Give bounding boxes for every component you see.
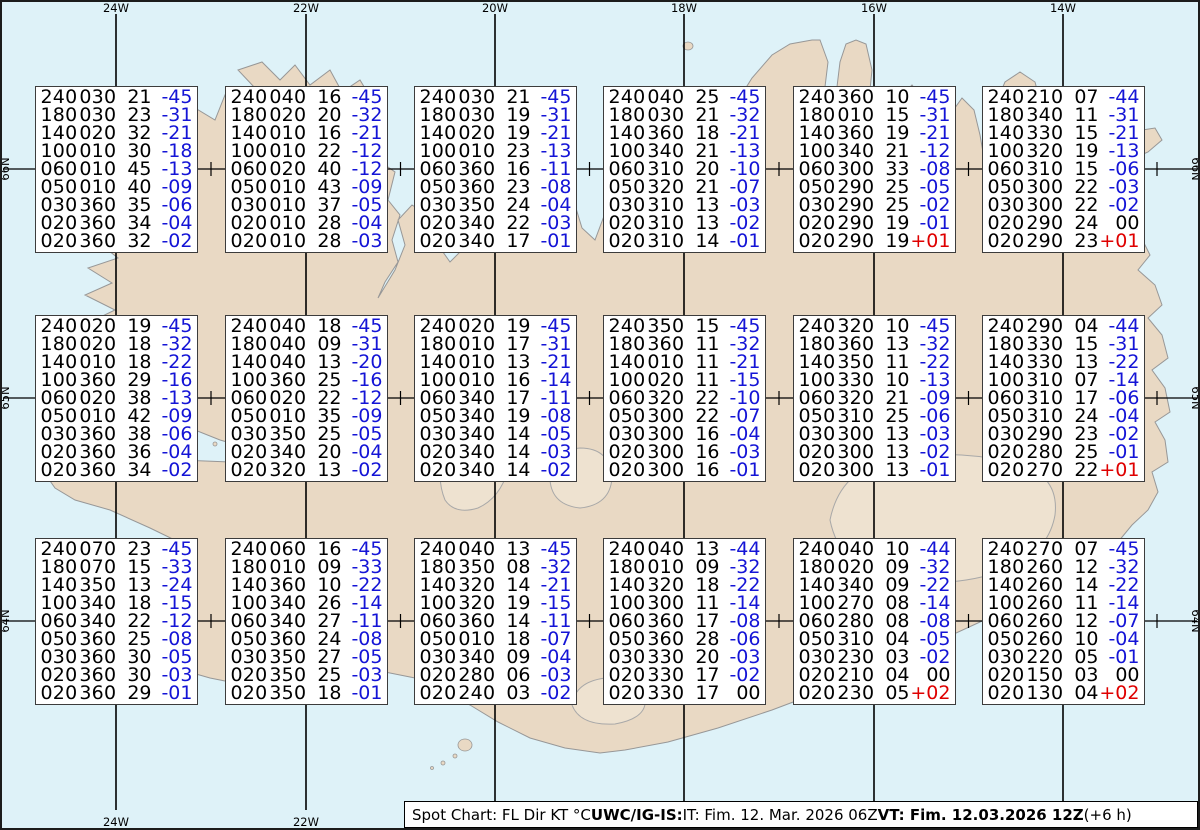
spot-line: 24002019-45: [420, 317, 572, 335]
spot-spd: 16: [694, 461, 720, 479]
spot-fl: 240: [231, 88, 268, 106]
spot-tmp: -01: [152, 684, 193, 702]
spot-box-r2c5: 24027007-4518026012-3214026014-221002601…: [982, 538, 1145, 705]
caption-segment: VT: Fim. 12.03.2026 12Z: [878, 806, 1084, 824]
spot-spd: 18: [316, 317, 342, 335]
spot-fl: 020: [231, 232, 268, 250]
spot-spd: 13: [505, 540, 531, 558]
spot-dir: 010: [269, 232, 306, 250]
spot-spd: 23: [1073, 232, 1099, 250]
spot-chart-canvas: 24W24W22W22W20W20W18W18W16W16W14W14W66N6…: [0, 0, 1200, 830]
spot-tmp: -02: [152, 461, 193, 479]
spot-spd: 29: [126, 684, 152, 702]
spot-box-r2c4: 24004010-4418002009-3214034009-221002700…: [793, 538, 956, 705]
spot-fl: 240: [988, 540, 1025, 558]
spot-tmp: -45: [910, 88, 951, 106]
spot-tmp: -45: [720, 317, 761, 335]
spot-fl: 020: [41, 684, 78, 702]
spot-box-r0c4: 24036010-4518001015-3114036019-211003402…: [793, 86, 956, 253]
spot-fl: 240: [609, 88, 646, 106]
spot-dir: 070: [79, 540, 116, 558]
spot-box-r0c0: 24003021-4518003023-3114002032-211000103…: [35, 86, 198, 253]
spot-spd: 04: [1073, 317, 1099, 335]
spot-tmp: -02: [531, 684, 572, 702]
spot-line: 02032013-02: [231, 461, 383, 479]
spot-tmp: -03: [342, 232, 383, 250]
spot-dir: 330: [647, 684, 684, 702]
spot-fl: 020: [41, 461, 78, 479]
spot-dir: 290: [837, 232, 874, 250]
lon-label-bottom: 24W: [103, 815, 129, 829]
lat-label-right: 65N: [1189, 386, 1200, 409]
spot-spd: 13: [694, 540, 720, 558]
spot-spd: 03: [505, 684, 531, 702]
spot-fl: 020: [609, 461, 646, 479]
spot-line: 24027007-45: [988, 540, 1140, 558]
spot-spd: 34: [126, 461, 152, 479]
spot-fl: 020: [609, 232, 646, 250]
spot-dir: 300: [837, 461, 874, 479]
spot-line: 02029019+01: [799, 232, 951, 250]
spot-fl: 020: [231, 461, 268, 479]
spot-dir: 230: [837, 684, 874, 702]
spot-fl: 240: [41, 88, 78, 106]
spot-box-r1c1: 24004018-4518004009-3114004013-201003602…: [225, 315, 388, 482]
spot-spd: 05: [884, 684, 910, 702]
spot-line: 02030013-01: [799, 461, 951, 479]
spot-line: 24004016-45: [231, 88, 383, 106]
spot-fl: 240: [609, 317, 646, 335]
spot-dir: 290: [1026, 232, 1063, 250]
spot-spd: 07: [1073, 540, 1099, 558]
spot-fl: 020: [988, 461, 1025, 479]
lon-label-top: 24W: [103, 1, 129, 15]
spot-dir: 350: [647, 317, 684, 335]
spot-dir: 360: [79, 232, 116, 250]
spot-spd: 21: [505, 88, 531, 106]
spot-line: 02034014-02: [420, 461, 572, 479]
spot-dir: 270: [1026, 461, 1063, 479]
spot-tmp: +01: [1099, 461, 1140, 479]
spot-dir: 240: [458, 684, 495, 702]
lat-label-left: 66N: [0, 157, 12, 180]
spot-tmp: +01: [1099, 232, 1140, 250]
spot-box-r0c3: 24004025-4518003021-3214036018-211003402…: [603, 86, 766, 253]
spot-fl: 240: [41, 540, 78, 558]
spot-tmp: -45: [152, 88, 193, 106]
spot-dir: 300: [647, 461, 684, 479]
spot-line: 24032010-45: [799, 317, 951, 335]
spot-spd: 15: [694, 317, 720, 335]
spot-line: 02031014-01: [609, 232, 761, 250]
spot-box-r2c3: 24004013-4418001009-3214032018-221003001…: [603, 538, 766, 705]
spot-line: 02024003-02: [420, 684, 572, 702]
spot-tmp: -02: [531, 461, 572, 479]
spot-line: 02036032-02: [41, 232, 193, 250]
caption-segment: (+6 h): [1084, 806, 1132, 824]
spot-dir: 020: [458, 317, 495, 335]
spot-line: 02001028-03: [231, 232, 383, 250]
spot-line: 24035015-45: [609, 317, 761, 335]
spot-tmp: +02: [1099, 684, 1140, 702]
spot-line: 02034017-01: [420, 232, 572, 250]
spot-fl: 020: [420, 461, 457, 479]
spot-spd: 19: [126, 317, 152, 335]
spot-line: 24003021-45: [41, 88, 193, 106]
spot-line: 02013004+02: [988, 684, 1140, 702]
spot-line: 02029023+01: [988, 232, 1140, 250]
spot-fl: 020: [420, 232, 457, 250]
spot-tmp: -45: [152, 317, 193, 335]
spot-dir: 040: [269, 317, 306, 335]
spot-fl: 240: [231, 317, 268, 335]
spot-spd: 28: [316, 232, 342, 250]
spot-line: 24021007-44: [988, 88, 1140, 106]
spot-tmp: -02: [152, 232, 193, 250]
spot-line: 02030016-01: [609, 461, 761, 479]
spot-box-r1c4: 24032010-4518036013-3214035011-221003301…: [793, 315, 956, 482]
spot-dir: 040: [647, 540, 684, 558]
spot-dir: 340: [458, 461, 495, 479]
lon-label-top: 18W: [671, 1, 697, 15]
spot-fl: 240: [420, 88, 457, 106]
spot-fl: 020: [420, 684, 457, 702]
spot-fl: 240: [799, 88, 836, 106]
lat-label-left: 64N: [0, 609, 12, 632]
lat-label-right: 66N: [1189, 157, 1200, 180]
spot-dir: 360: [837, 88, 874, 106]
spot-line: 24002019-45: [41, 317, 193, 335]
lon-label-top: 16W: [861, 1, 887, 15]
spot-fl: 240: [799, 540, 836, 558]
spot-dir: 020: [79, 317, 116, 335]
spot-tmp: +02: [910, 684, 951, 702]
spot-box-r0c2: 24003021-4518003019-3114002019-211000102…: [414, 86, 577, 253]
spot-tmp: -44: [1099, 317, 1140, 335]
spot-tmp: -44: [910, 540, 951, 558]
spot-tmp: -45: [531, 88, 572, 106]
spot-fl: 020: [799, 461, 836, 479]
spot-tmp: -01: [910, 461, 951, 479]
spot-spd: 07: [1073, 88, 1099, 106]
spot-dir: 040: [837, 540, 874, 558]
spot-line: 02036029-01: [41, 684, 193, 702]
spot-spd: 13: [884, 461, 910, 479]
spot-spd: 19: [505, 317, 531, 335]
spot-line: 24004025-45: [609, 88, 761, 106]
spot-dir: 030: [79, 88, 116, 106]
spot-spd: 25: [694, 88, 720, 106]
spot-box-r2c2: 24004013-4518035008-3214032014-211003201…: [414, 538, 577, 705]
spot-fl: 020: [41, 232, 78, 250]
spot-fl: 020: [988, 684, 1025, 702]
spot-dir: 060: [269, 540, 306, 558]
spot-box-r1c5: 24029004-4418033015-3114033013-221003100…: [982, 315, 1145, 482]
spot-line: 24004013-45: [420, 540, 572, 558]
spot-line: 24004013-44: [609, 540, 761, 558]
lat-label-left: 65N: [0, 386, 12, 409]
spot-dir: 320: [837, 317, 874, 335]
spot-spd: 22: [1073, 461, 1099, 479]
spot-box-r1c3: 24035015-4518036011-3214001011-211000201…: [603, 315, 766, 482]
spot-spd: 18: [316, 684, 342, 702]
spot-line: 02035018-01: [231, 684, 383, 702]
spot-fl: 240: [988, 317, 1025, 335]
spot-fl: 020: [609, 684, 646, 702]
spot-line: 24036010-45: [799, 88, 951, 106]
spot-fl: 240: [231, 540, 268, 558]
spot-dir: 040: [458, 540, 495, 558]
spot-line: 24006016-45: [231, 540, 383, 558]
lat-label-right: 64N: [1189, 609, 1200, 632]
spot-dir: 210: [1026, 88, 1063, 106]
caption-segment: UWC/IG-IS:: [591, 806, 683, 824]
spot-line: 02023005+02: [799, 684, 951, 702]
caption-segment: IT: Fim. 12. Mar. 2026 06Z: [683, 806, 878, 824]
spot-line: 02036034-02: [41, 461, 193, 479]
spot-spd: 14: [505, 461, 531, 479]
spot-fl: 240: [420, 317, 457, 335]
spot-fl: 240: [609, 540, 646, 558]
spot-line: 0203301700: [609, 684, 761, 702]
spot-fl: 240: [420, 540, 457, 558]
spot-tmp: -45: [342, 317, 383, 335]
spot-spd: 19: [884, 232, 910, 250]
spot-dir: 340: [458, 232, 495, 250]
spot-tmp: +01: [910, 232, 951, 250]
spot-spd: 13: [316, 461, 342, 479]
caption-segment: Spot Chart: FL Dir KT °C: [412, 806, 591, 824]
spot-spd: 04: [1073, 684, 1099, 702]
spot-spd: 17: [694, 684, 720, 702]
spot-spd: 10: [884, 317, 910, 335]
spot-spd: 16: [316, 88, 342, 106]
lon-label-bottom: 22W: [293, 815, 319, 829]
spot-tmp: -01: [531, 232, 572, 250]
spot-tmp: -45: [1099, 540, 1140, 558]
spot-line: 24004018-45: [231, 317, 383, 335]
spot-tmp: -02: [342, 461, 383, 479]
spot-box-r1c0: 24002019-4518002018-3214001018-221003602…: [35, 315, 198, 482]
spot-dir: 040: [647, 88, 684, 106]
spot-dir: 360: [79, 461, 116, 479]
spot-fl: 020: [799, 232, 836, 250]
spot-spd: 14: [694, 232, 720, 250]
spot-tmp: -45: [342, 88, 383, 106]
spot-fl: 020: [799, 684, 836, 702]
spot-tmp: -01: [342, 684, 383, 702]
spot-tmp: 00: [720, 684, 761, 702]
spot-tmp: -45: [720, 88, 761, 106]
spot-spd: 10: [884, 540, 910, 558]
spot-line: 02027022+01: [988, 461, 1140, 479]
spot-fl: 240: [41, 317, 78, 335]
spot-dir: 030: [458, 88, 495, 106]
spot-tmp: -01: [720, 461, 761, 479]
spot-tmp: -45: [342, 540, 383, 558]
spot-line: 24003021-45: [420, 88, 572, 106]
spot-tmp: -44: [720, 540, 761, 558]
spot-box-r1c2: 24002019-4518001017-3114001013-211000101…: [414, 315, 577, 482]
spot-spd: 32: [126, 232, 152, 250]
lon-label-top: 22W: [293, 1, 319, 15]
spot-spd: 10: [884, 88, 910, 106]
spot-fl: 240: [799, 317, 836, 335]
spot-tmp: -45: [152, 540, 193, 558]
spot-dir: 320: [269, 461, 306, 479]
spot-spd: 16: [316, 540, 342, 558]
spot-line: 24007023-45: [41, 540, 193, 558]
spot-spd: 17: [505, 232, 531, 250]
spot-fl: 020: [988, 232, 1025, 250]
spot-tmp: -44: [1099, 88, 1140, 106]
spot-tmp: -45: [531, 317, 572, 335]
spot-spd: 23: [126, 540, 152, 558]
spot-dir: 310: [647, 232, 684, 250]
spot-dir: 360: [79, 684, 116, 702]
lon-label-top: 20W: [482, 1, 508, 15]
spot-dir: 270: [1026, 540, 1063, 558]
spot-tmp: -01: [720, 232, 761, 250]
caption-bar: Spot Chart: FL Dir KT °C UWC/IG-IS: IT: …: [404, 801, 1198, 828]
spot-dir: 130: [1026, 684, 1063, 702]
spot-box-r0c1: 24004016-4518002020-3214001016-211000102…: [225, 86, 388, 253]
spot-box-r0c5: 24021007-4418034011-3114033015-211003201…: [982, 86, 1145, 253]
spot-fl: 240: [988, 88, 1025, 106]
lon-label-top: 14W: [1050, 1, 1076, 15]
spot-dir: 040: [269, 88, 306, 106]
spot-dir: 290: [1026, 317, 1063, 335]
spot-line: 24004010-44: [799, 540, 951, 558]
spot-box-r2c0: 24007023-4518007015-3314035013-241003401…: [35, 538, 198, 705]
spot-dir: 350: [269, 684, 306, 702]
spot-tmp: -45: [910, 317, 951, 335]
spot-fl: 020: [231, 684, 268, 702]
spot-box-r2c1: 24006016-4518001009-3314036010-221003402…: [225, 538, 388, 705]
spot-tmp: -45: [531, 540, 572, 558]
spot-spd: 21: [126, 88, 152, 106]
spot-line: 24029004-44: [988, 317, 1140, 335]
